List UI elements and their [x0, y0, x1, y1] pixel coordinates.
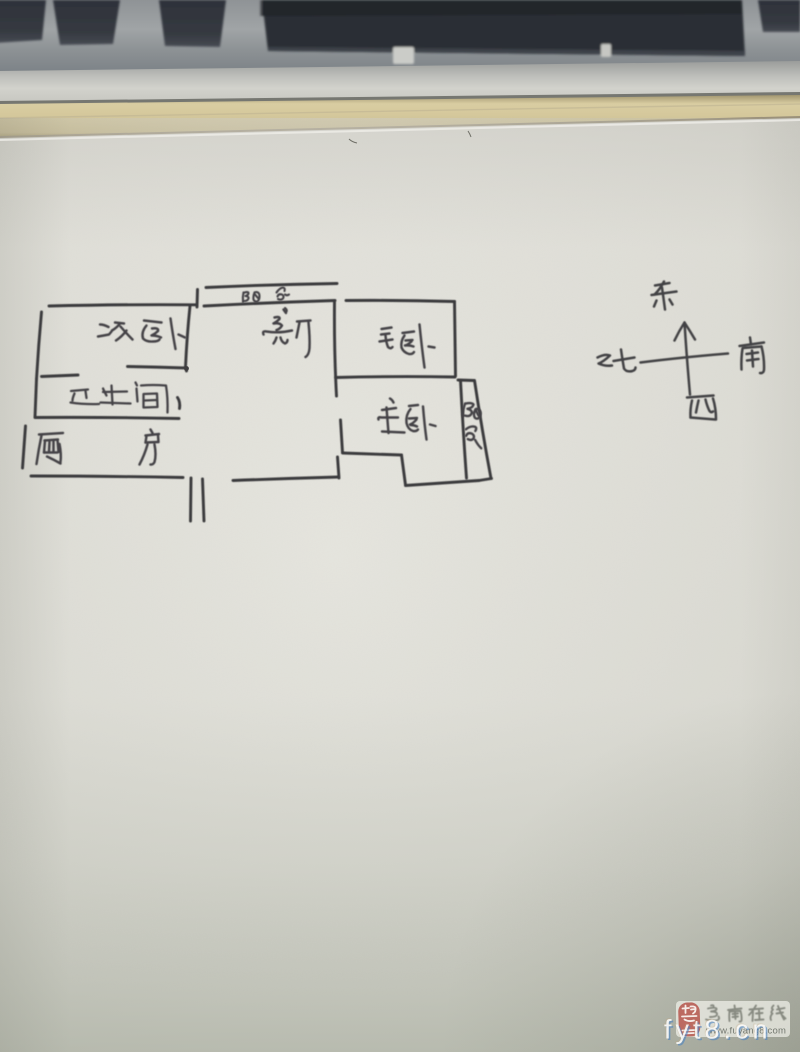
svg-text:fyt8.cn: fyt8.cn: [664, 1015, 772, 1045]
